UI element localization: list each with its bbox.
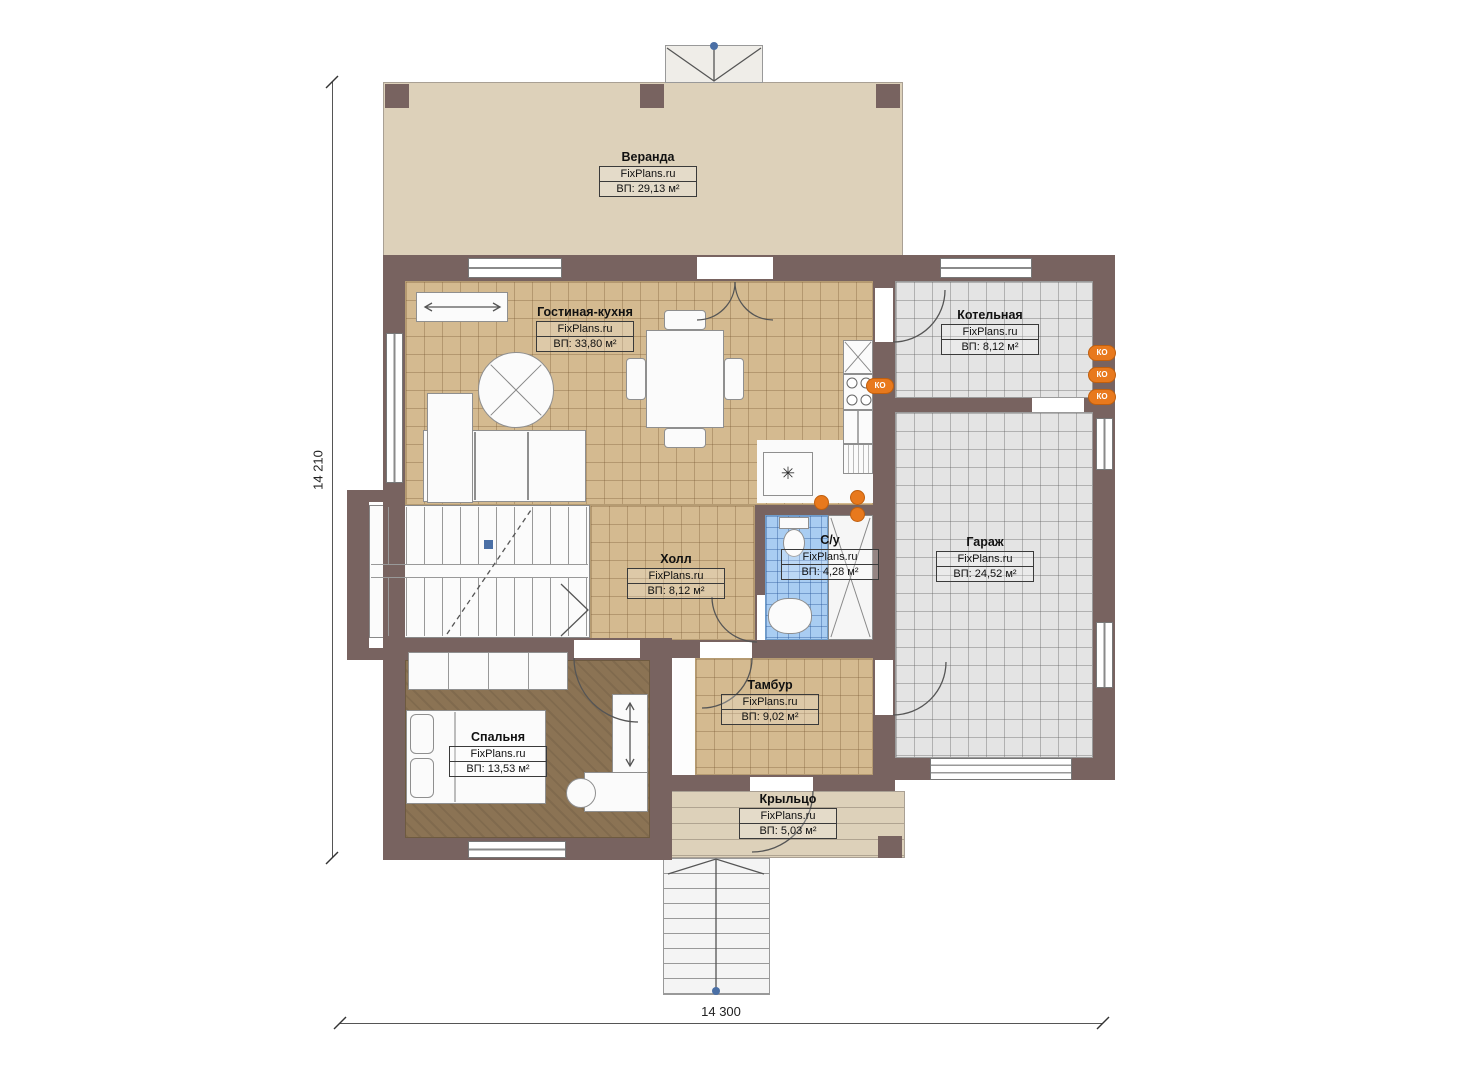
garage-floor (895, 412, 1093, 758)
entry-corridor-floor (674, 658, 695, 775)
garage-door (930, 758, 1072, 780)
room-area: ВП: 13,53 м² (449, 762, 547, 777)
door-opening (757, 595, 765, 640)
room-area: ВП: 9,02 м² (721, 710, 819, 725)
room-brand: FixPlans.ru (627, 568, 725, 584)
room-area: ВП: 29,13 м² (599, 182, 697, 197)
dining-table (646, 330, 724, 428)
door-opening (750, 777, 813, 791)
door-opening (700, 642, 752, 658)
room-label-boiler: Котельная FixPlans.ru ВП: 8,12 м² (941, 308, 1039, 355)
window (468, 841, 566, 858)
door-opening (875, 660, 893, 715)
pillow (410, 758, 434, 798)
veranda-post (640, 84, 664, 108)
window (468, 258, 562, 278)
wall (650, 638, 672, 860)
window (940, 258, 1032, 278)
room-brand: FixPlans.ru (599, 166, 697, 182)
vent-unit: ✳ (763, 452, 813, 496)
window (1096, 622, 1113, 688)
utility-dot (850, 507, 865, 522)
dimension-label-bottom: 14 300 (701, 1004, 741, 1019)
stair-lower-run (371, 578, 588, 636)
dimension-line-bottom (340, 1023, 1103, 1024)
stair-upper-run (371, 507, 588, 564)
room-brand: FixPlans.ru (781, 549, 879, 565)
chair (626, 358, 646, 400)
wardrobe-tall (612, 694, 648, 778)
wall (347, 648, 383, 660)
sideboard (416, 292, 508, 322)
chair (664, 310, 706, 330)
room-name: Котельная (957, 308, 1022, 322)
room-label-tambour: Тамбур FixPlans.ru ВП: 9,02 м² (721, 678, 819, 725)
room-label-porch: Крыльцо FixPlans.ru ВП: 5,03 м² (739, 792, 837, 839)
veranda-post (876, 84, 900, 108)
table-x-icon (479, 353, 553, 427)
room-brand: FixPlans.ru (536, 321, 634, 337)
room-brand: FixPlans.ru (449, 746, 547, 762)
heating-badge: КО (1088, 345, 1116, 361)
room-area: ВП: 4,28 м² (781, 565, 879, 580)
door-opening (574, 640, 640, 658)
utility-dot (850, 490, 865, 505)
fridge (843, 340, 873, 374)
room-area: ВП: 8,12 м² (941, 340, 1039, 355)
room-label-bathroom: С/у FixPlans.ru ВП: 4,28 м² (781, 533, 879, 580)
heating-badge: КО (1088, 389, 1116, 405)
toilet-tank (779, 517, 809, 529)
room-area: ВП: 5,03 м² (739, 824, 837, 839)
exterior-stairs (663, 858, 770, 995)
desk-chair (566, 778, 596, 808)
room-brand: FixPlans.ru (739, 808, 837, 824)
badge-label: КО (874, 381, 885, 390)
room-name: Крыльцо (760, 792, 817, 806)
door-opening (1032, 398, 1084, 412)
window (386, 333, 403, 483)
stair-landing-line (371, 564, 588, 578)
room-name: Гостиная-кухня (537, 305, 633, 319)
round-table (478, 352, 554, 428)
stair-marker (484, 540, 493, 549)
fridge-x-icon (844, 341, 872, 373)
heating-badge: КО (866, 378, 894, 394)
door-opening (875, 288, 893, 342)
badge-label: КО (1096, 392, 1107, 401)
dimension-line-left (332, 82, 333, 858)
room-brand: FixPlans.ru (941, 324, 1039, 340)
room-label-living-kitchen: Гостиная-кухня FixPlans.ru ВП: 33,80 м² (536, 305, 634, 352)
floor-plan: ✳ КО КО КО КО (0, 0, 1474, 1080)
bathroom-sink (768, 598, 812, 634)
vent-symbol: ✳ (781, 464, 795, 484)
room-label-bedroom: Спальня FixPlans.ru ВП: 13,53 м² (449, 730, 547, 777)
room-area: ВП: 8,12 м² (627, 584, 725, 599)
room-label-hall: Холл FixPlans.ru ВП: 8,12 м² (627, 552, 725, 599)
room-name: Гараж (966, 535, 1003, 549)
canopy (665, 45, 763, 83)
room-name: С/у (820, 533, 839, 547)
room-area: ВП: 33,80 м² (536, 337, 634, 352)
room-brand: FixPlans.ru (721, 694, 819, 710)
room-name: Веранда (621, 150, 674, 164)
chair (664, 428, 706, 448)
room-name: Холл (660, 552, 691, 566)
kitchen-counter (843, 410, 873, 444)
utility-dot (814, 495, 829, 510)
wardrobe (408, 652, 568, 690)
chair (724, 358, 744, 400)
room-brand: FixPlans.ru (936, 551, 1034, 567)
door-opening (697, 257, 773, 279)
room-label-veranda: Веранда FixPlans.ru ВП: 29,13 м² (599, 150, 697, 197)
room-label-garage: Гараж FixPlans.ru ВП: 24,52 м² (936, 535, 1034, 582)
veranda-post (385, 84, 409, 108)
room-name: Спальня (471, 730, 525, 744)
heating-badge: КО (1088, 367, 1116, 383)
badge-label: КО (1096, 370, 1107, 379)
porch-post (878, 836, 902, 858)
room-name: Тамбур (747, 678, 792, 692)
pillow (410, 714, 434, 754)
wall (347, 490, 369, 660)
dimension-label-left: 14 210 (311, 450, 326, 490)
badge-label: КО (1096, 348, 1107, 357)
sofa-chaise (427, 393, 473, 503)
room-area: ВП: 24,52 м² (936, 567, 1034, 582)
window (1096, 418, 1113, 470)
kitchen-sink (843, 444, 873, 474)
